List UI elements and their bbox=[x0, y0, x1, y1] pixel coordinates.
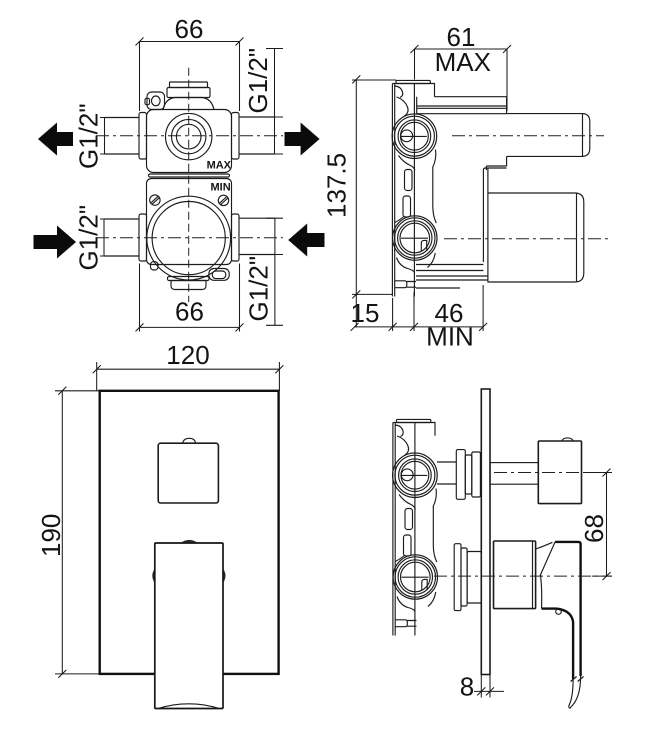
svg-text:15: 15 bbox=[351, 298, 380, 328]
svg-text:8: 8 bbox=[460, 672, 474, 702]
svg-text:MIN: MIN bbox=[426, 322, 474, 352]
svg-text:68: 68 bbox=[579, 514, 609, 543]
svg-text:G1/2": G1/2" bbox=[243, 48, 273, 114]
svg-text:66: 66 bbox=[175, 14, 204, 44]
svg-text:MAX: MAX bbox=[207, 160, 232, 172]
svg-text:120: 120 bbox=[166, 340, 209, 370]
svg-text:MIN: MIN bbox=[211, 182, 231, 194]
svg-text:66: 66 bbox=[175, 297, 204, 327]
svg-text:MAX: MAX bbox=[435, 47, 491, 77]
svg-text:137.5: 137.5 bbox=[322, 153, 352, 218]
svg-text:G1/2": G1/2" bbox=[244, 256, 274, 322]
svg-text:190: 190 bbox=[36, 514, 66, 557]
